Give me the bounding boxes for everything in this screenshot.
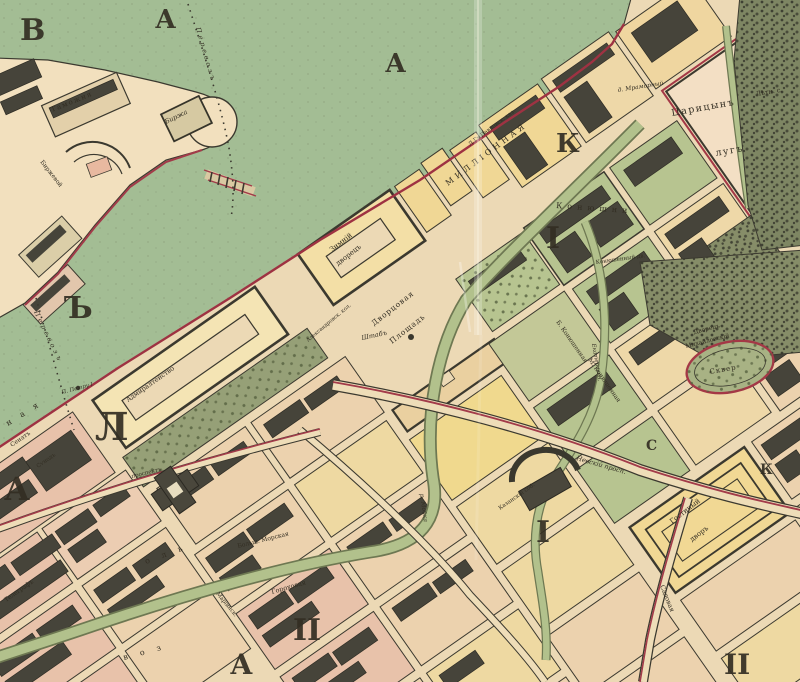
district-letter: А [230, 648, 253, 681]
district-numeral: І [546, 221, 560, 256]
river-letter: А [385, 49, 406, 79]
district-letter: Л [95, 404, 129, 449]
street-letter: К [760, 462, 773, 478]
alexander-column [408, 334, 414, 340]
district-numeral: ІІ [293, 613, 321, 648]
map-canvas: В А А Ъ Л А А К І І ІІ ІІ С К Таможня Би… [0, 0, 800, 682]
street-letter: С [646, 438, 657, 454]
river-letter: А [155, 5, 176, 35]
historical-city-map[interactable]: В А А Ъ Л А А К І І ІІ ІІ С К Таможня Би… [0, 0, 800, 682]
district-letter: А [4, 470, 30, 508]
river-letter: В [20, 13, 45, 48]
district-numeral: І [536, 515, 550, 550]
district-numeral: ІІ [724, 648, 750, 681]
district-letter: К [556, 129, 580, 159]
river-letter: Ъ [64, 291, 93, 326]
